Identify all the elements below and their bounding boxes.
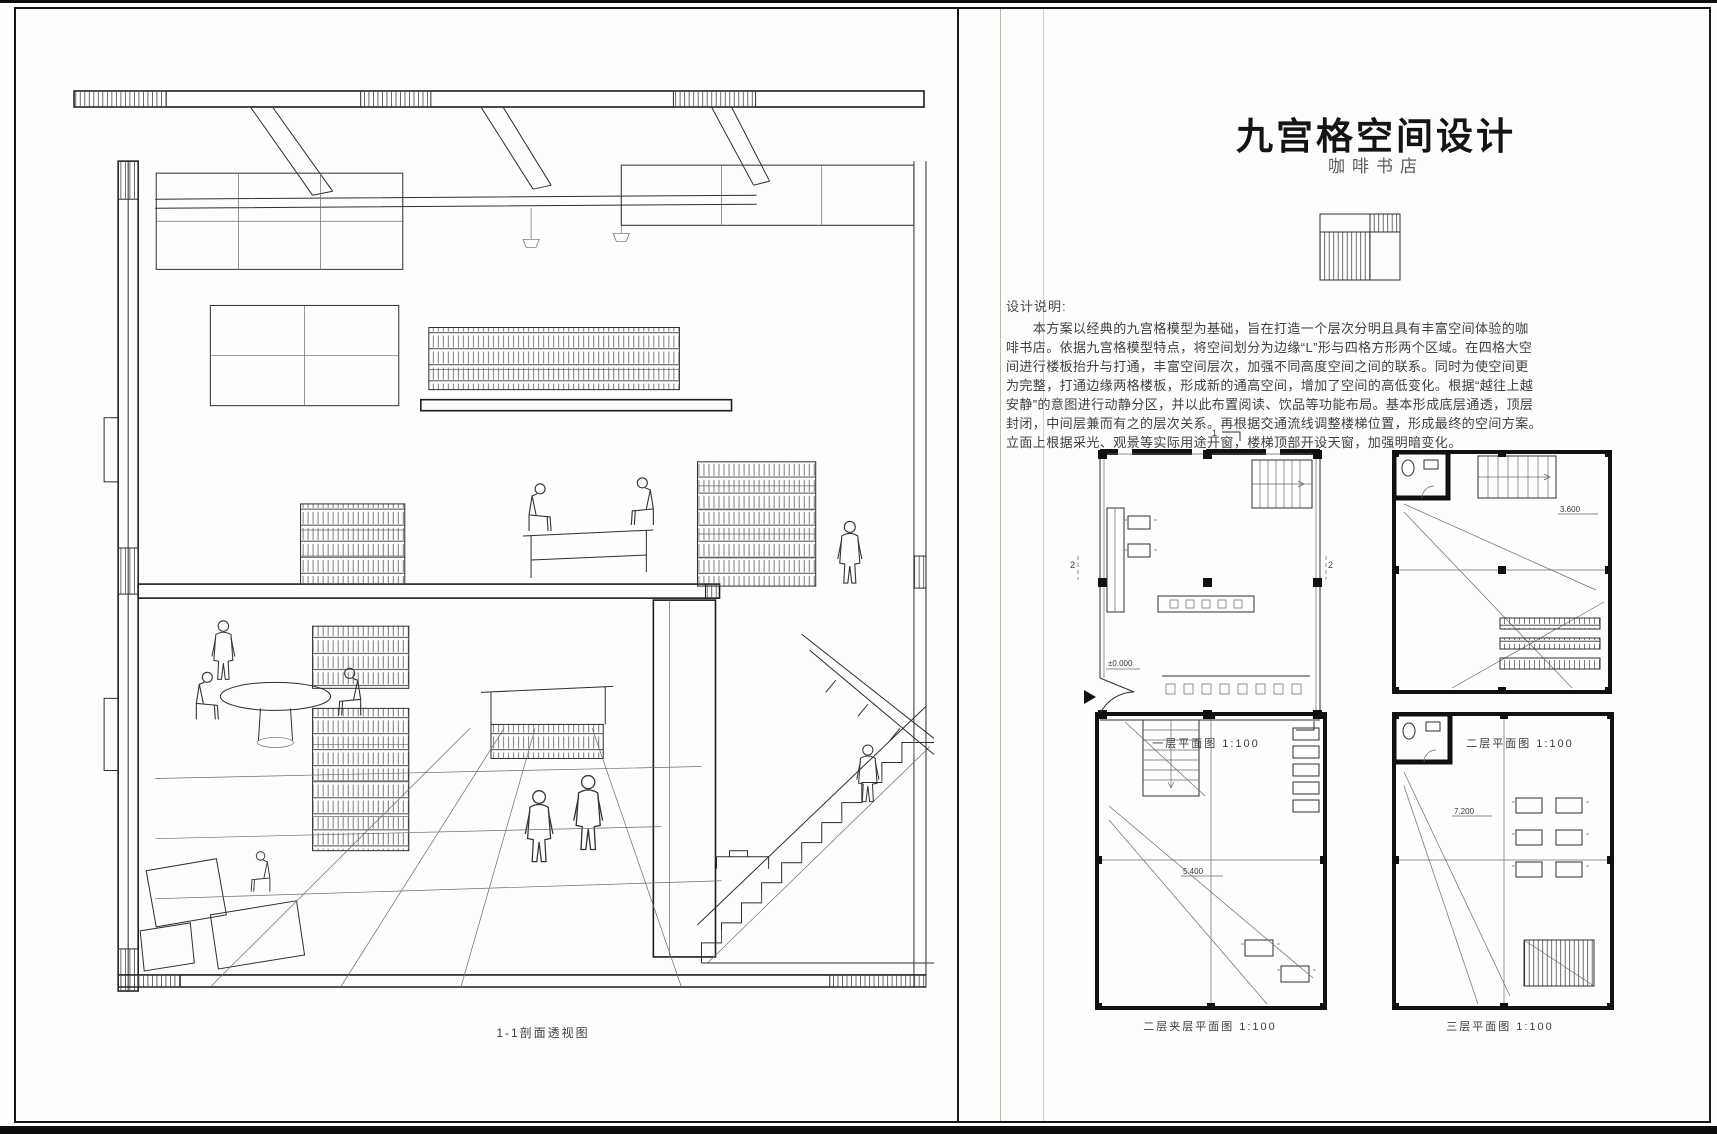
floor-plan-3f: 7.200: [1392, 712, 1614, 1010]
page-subtitle: 咖啡书店: [1062, 152, 1690, 177]
section-perspective-drawing: [60, 76, 938, 1012]
ninegrid-logo-icon: [1318, 212, 1402, 284]
floor-plan-1f: 2 2 1: [1066, 424, 1336, 724]
design-notes-line: 安静”的意图进行动静分区，并以此布置阅读、饮品等功能布局。基本形成底层通透，顶层: [1006, 395, 1554, 414]
level-annotation-1f: ±0.000: [1108, 659, 1133, 668]
scan-gutter-line: [1043, 9, 1044, 1121]
presentation-sheet: 1-1剖面透视图 九宫格空间设计 咖啡书店 设计说明: 本方案以经典的九宫格模型…: [0, 0, 1717, 1134]
design-notes-line: 本方案以经典的九宫格模型为基础，旨在打造一个层次分明且具有丰富空间体验的咖: [1006, 319, 1554, 338]
section-mark-top: 1: [1212, 428, 1217, 438]
scan-edge-top: [0, 0, 1717, 3]
design-notes-line: 啡书店。依据九宫格模型特点，将空间划分为边缘“L”形与四格方形两个区域。在四格大…: [1006, 338, 1554, 357]
level-annotation-mezz: 5.400: [1183, 867, 1204, 876]
plan-caption-3f: 三层平面图 1:100: [1390, 1018, 1610, 1034]
section-perspective-svg: [60, 76, 938, 1012]
scan-edge-bottom: [0, 1126, 1717, 1134]
design-notes-heading: 设计说明:: [1006, 296, 1554, 315]
floor-plan-2f: 3.600: [1392, 450, 1612, 694]
level-annotation-2f: 3.600: [1560, 505, 1581, 514]
panel-divider-line: [957, 7, 959, 1123]
plan-caption-2f-mezzanine: 二层夹层平面图 1:100: [1100, 1018, 1320, 1034]
design-notes-line: 为完整，打通边缘两格楼板，形成新的通高空间，增加了空间的高低变化。根据“越往上越: [1006, 376, 1554, 395]
floor-plan-2f-mezzanine: 5.400: [1095, 712, 1327, 1010]
section-caption: 1-1剖面透视图: [438, 1024, 648, 1041]
section-mark-left: 2: [1070, 560, 1075, 570]
scan-gutter-line: [1000, 9, 1001, 1121]
level-annotation-3f: 7.200: [1454, 807, 1475, 816]
section-mark-right: 2: [1328, 560, 1333, 570]
design-notes-line: 间进行楼板抬升与打通，丰富空间层次，加强不同高度空间之间的联系。同时为使空间更: [1006, 357, 1554, 376]
